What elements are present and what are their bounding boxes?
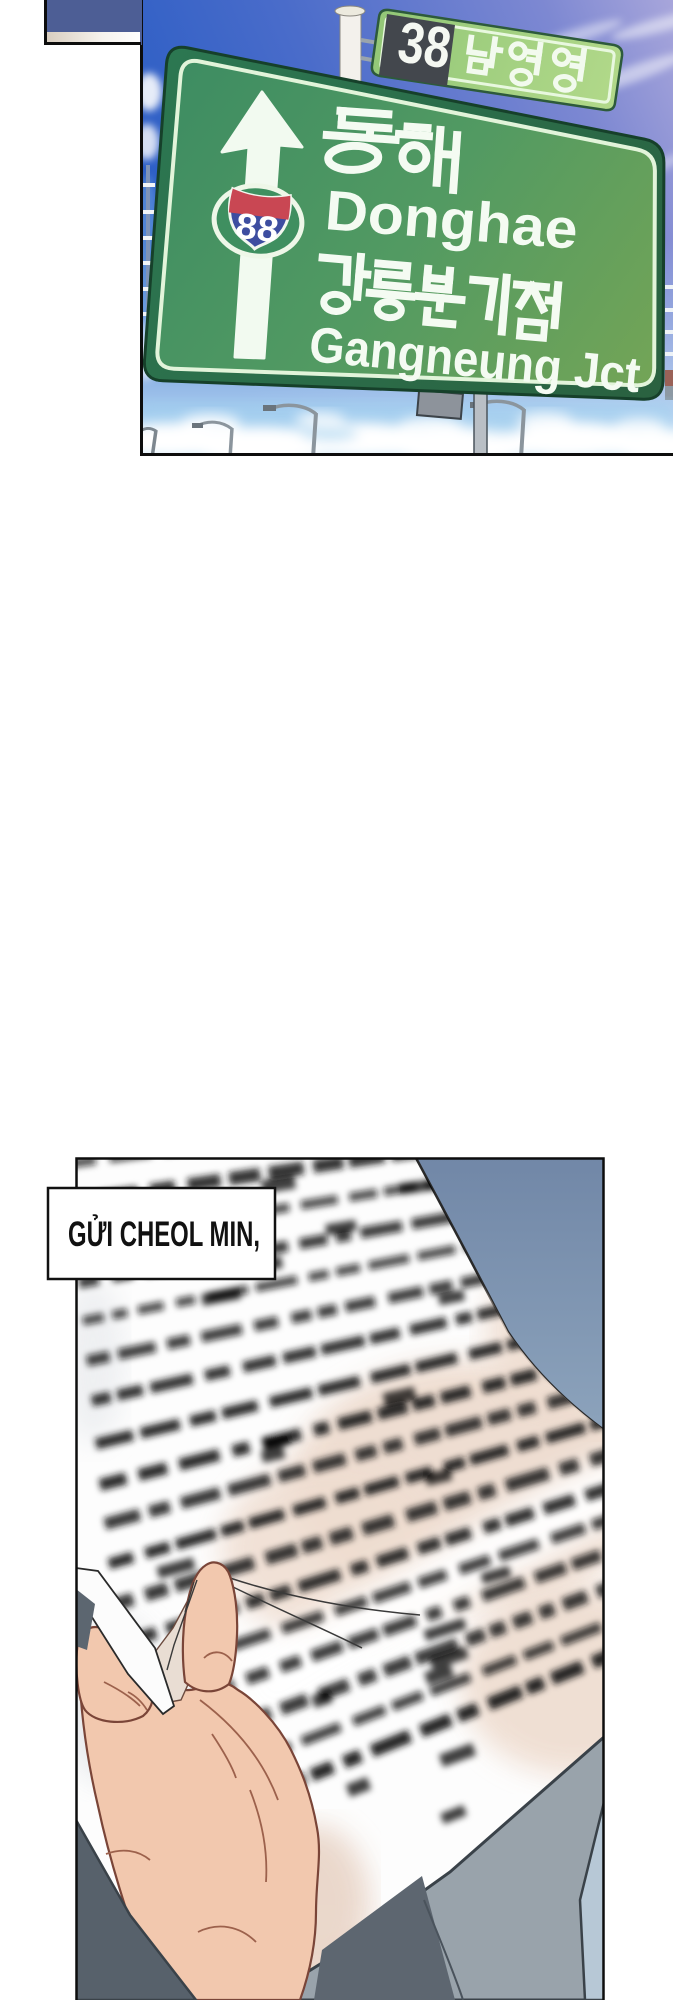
svg-text:GỬI CHEOL MIN,: GỬI CHEOL MIN, (68, 1214, 260, 1254)
svg-text:88: 88 (233, 204, 281, 250)
svg-text:38: 38 (394, 9, 455, 81)
